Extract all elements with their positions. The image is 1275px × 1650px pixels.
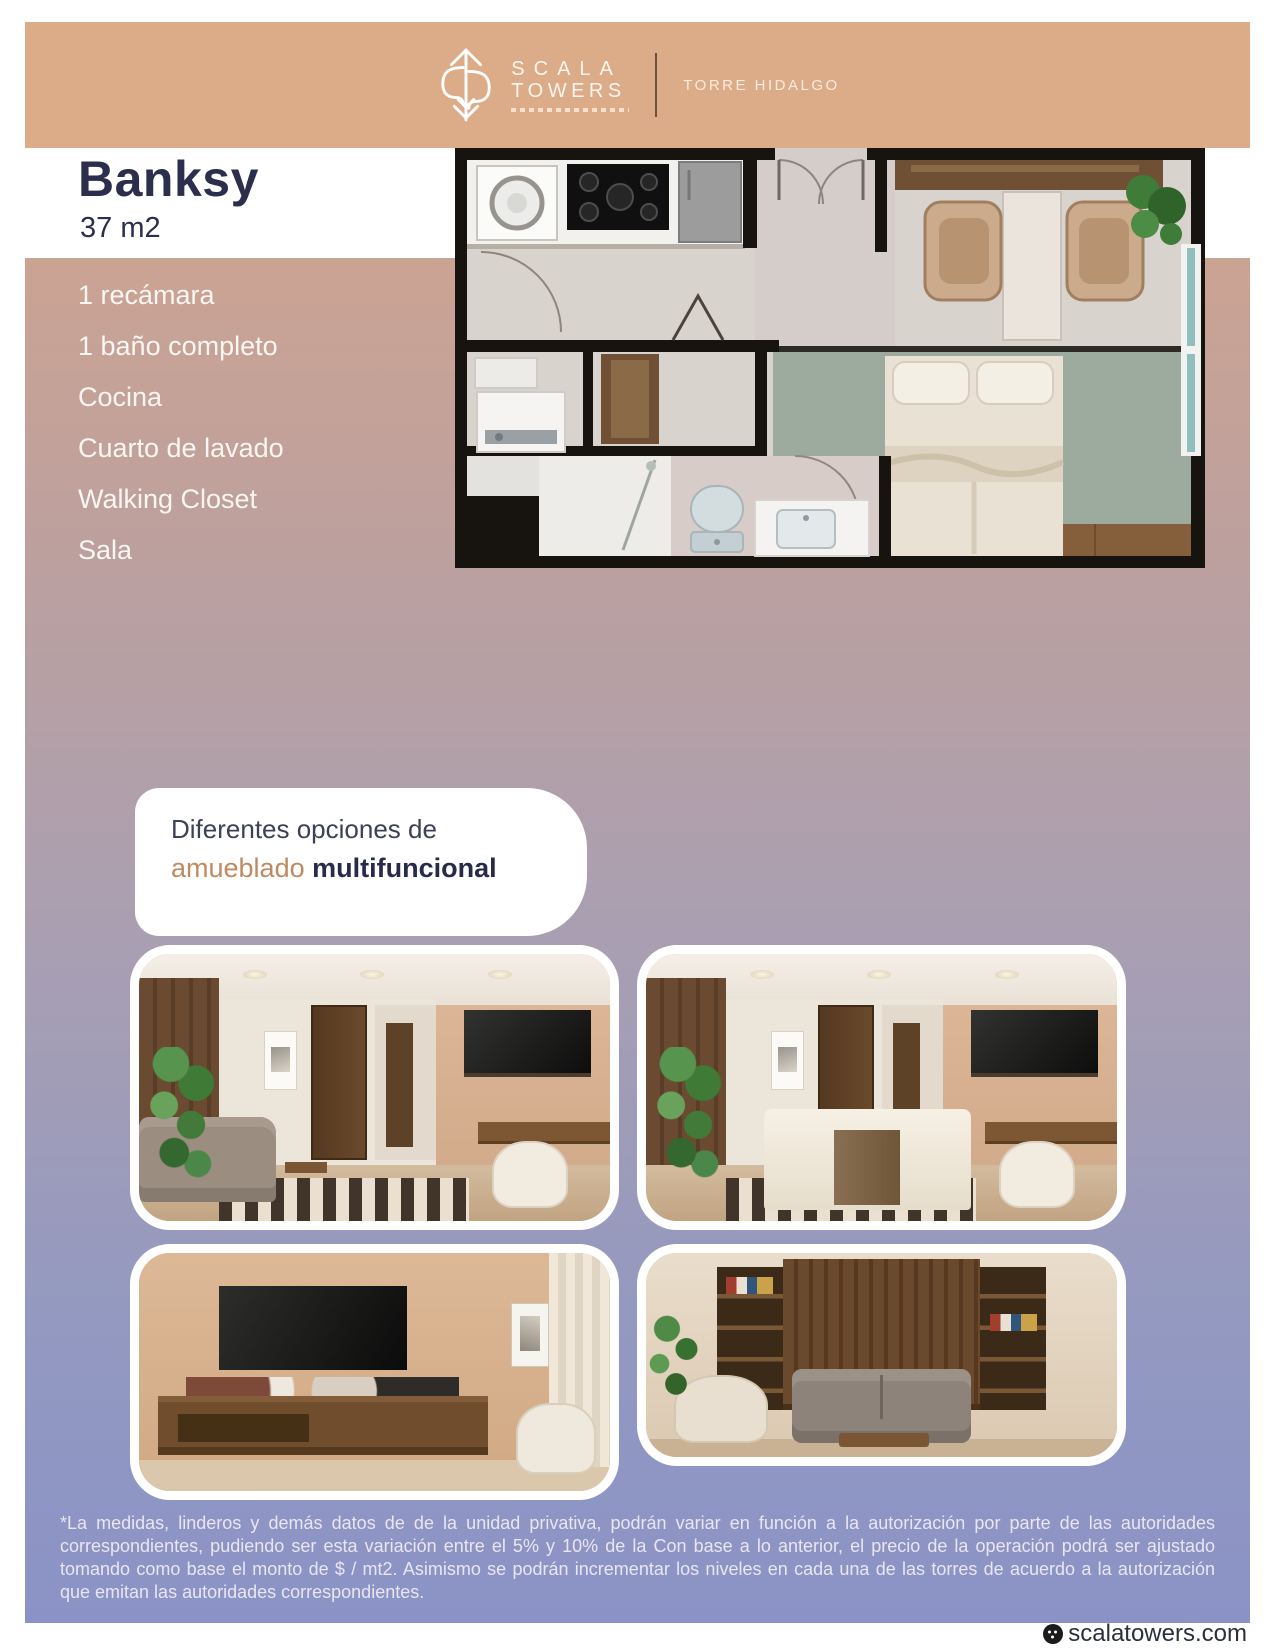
wall-art — [771, 1031, 804, 1090]
books — [726, 1277, 773, 1293]
ceiling-light — [243, 970, 267, 979]
hallway — [375, 1005, 436, 1160]
ceiling-light — [488, 970, 512, 979]
feature-living: Sala — [78, 525, 284, 576]
wall-tv — [219, 1286, 407, 1369]
footer-website[interactable]: scalatowers.com — [1068, 1620, 1247, 1648]
options-heading-highlight: amueblado — [171, 853, 305, 883]
feature-closet: Walking Closet — [78, 474, 284, 525]
options-heading-line1: Diferentes opciones de — [171, 814, 567, 845]
gallery-photo-bed-option — [637, 945, 1126, 1230]
wall-art — [511, 1303, 549, 1367]
floor-plan — [455, 148, 1205, 568]
gray-loveseat — [792, 1369, 971, 1442]
coffee-table — [839, 1433, 928, 1447]
books — [990, 1314, 1037, 1330]
bookshelf-right — [980, 1267, 1046, 1410]
brand-logo: SCALA TOWERS — [435, 44, 629, 126]
header-divider — [655, 53, 657, 117]
desk — [478, 1122, 610, 1143]
floor-plan-bathroom — [467, 446, 891, 556]
unit-title: Banksy — [78, 150, 259, 208]
options-heading-bold: multifuncional — [312, 853, 497, 883]
plant — [637, 1314, 712, 1406]
feature-kitchen: Cocina — [78, 372, 284, 423]
wall-tv — [971, 1010, 1098, 1077]
plant — [144, 1047, 229, 1186]
legal-disclaimer: *La medidas, linderos y demás datos de d… — [60, 1512, 1215, 1604]
header-band: SCALA TOWERS TORRE HIDALGO — [25, 22, 1250, 148]
scala-towers-logo-icon — [435, 44, 497, 126]
ceiling-light — [750, 970, 774, 979]
wood-door — [311, 1005, 368, 1160]
brand-line-towers: TOWERS — [511, 80, 629, 102]
feature-list: 1 recámara 1 baño completo Cocina Cuarto… — [78, 270, 284, 576]
options-heading-card: Diferentes opciones de amueblado multifu… — [135, 788, 587, 936]
bed-throw — [834, 1130, 900, 1205]
armchair — [516, 1403, 596, 1474]
desk-chair — [999, 1141, 1074, 1208]
wood-credenza — [158, 1396, 488, 1456]
plant — [651, 1047, 736, 1186]
unit-area: 37 m2 — [80, 212, 161, 245]
feature-bedroom: 1 recámara — [78, 270, 284, 321]
gallery-photo-sofa-option — [130, 945, 619, 1230]
feature-bathroom: 1 baño completo — [78, 321, 284, 372]
web-globe-icon — [1042, 1623, 1064, 1645]
brochure-page: SCALA TOWERS TORRE HIDALGO Banksy 37 m2 … — [0, 0, 1275, 1650]
footer: scalatowers.com — [1042, 1620, 1247, 1648]
gallery-photo-tv-console — [130, 1244, 619, 1500]
options-heading-line2: amueblado multifuncional — [171, 853, 567, 884]
feature-laundry: Cuarto de lavado — [78, 423, 284, 474]
floor-plan-entry-corridor — [755, 160, 895, 352]
desk — [985, 1122, 1117, 1143]
wall-tv — [464, 1010, 591, 1077]
tower-name-label: TORRE HIDALGO — [683, 77, 839, 94]
shelf-decor — [186, 1377, 459, 1396]
side-table — [285, 1162, 327, 1173]
logo-tagline — [511, 108, 629, 112]
brand-text: SCALA TOWERS — [511, 58, 629, 113]
gallery-photo-murphy-bed — [637, 1244, 1126, 1466]
wall-art — [264, 1031, 297, 1090]
brand-line-scala: SCALA — [511, 58, 629, 80]
desk-chair — [492, 1141, 567, 1208]
ceiling-light — [995, 970, 1019, 979]
